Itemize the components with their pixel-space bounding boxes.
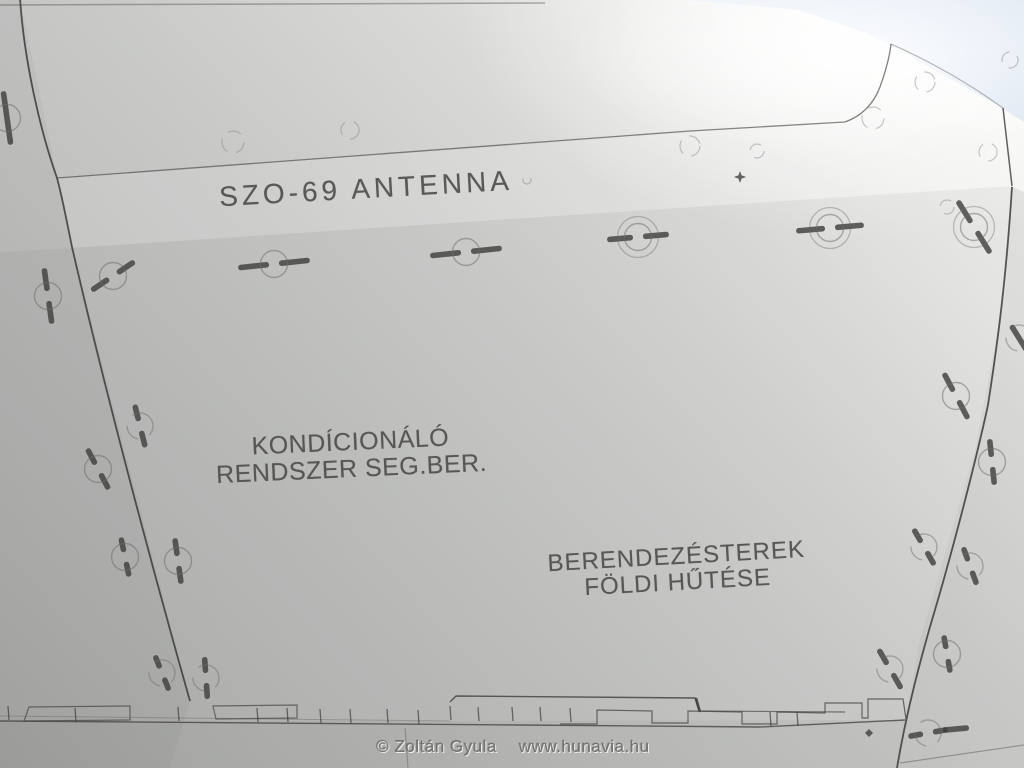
photo-watermark: © Zoltán Gyulawww.hunavia.hu (376, 737, 649, 757)
surface-dimple (915, 72, 935, 92)
top-edge-line (0, 3, 545, 5)
antenna-band-corner-curve (845, 44, 891, 122)
surface-dimple (979, 143, 997, 161)
aircraft-panel-photo: SZO-69 ANTENNA KONDÍCIONÁLÓ RENDSZER SEG… (0, 0, 1024, 768)
right-vertical-seam (1003, 108, 1012, 186)
watermark-site: www.hunavia.hu (519, 737, 650, 756)
surface-dimple (222, 131, 244, 153)
surface-dimple (1002, 52, 1018, 68)
upper-right-faint-edge (891, 44, 1003, 108)
panel-line-overlay (0, 0, 1024, 768)
watermark-author: © Zoltán Gyula (376, 737, 497, 756)
surface-dimple (341, 121, 359, 139)
